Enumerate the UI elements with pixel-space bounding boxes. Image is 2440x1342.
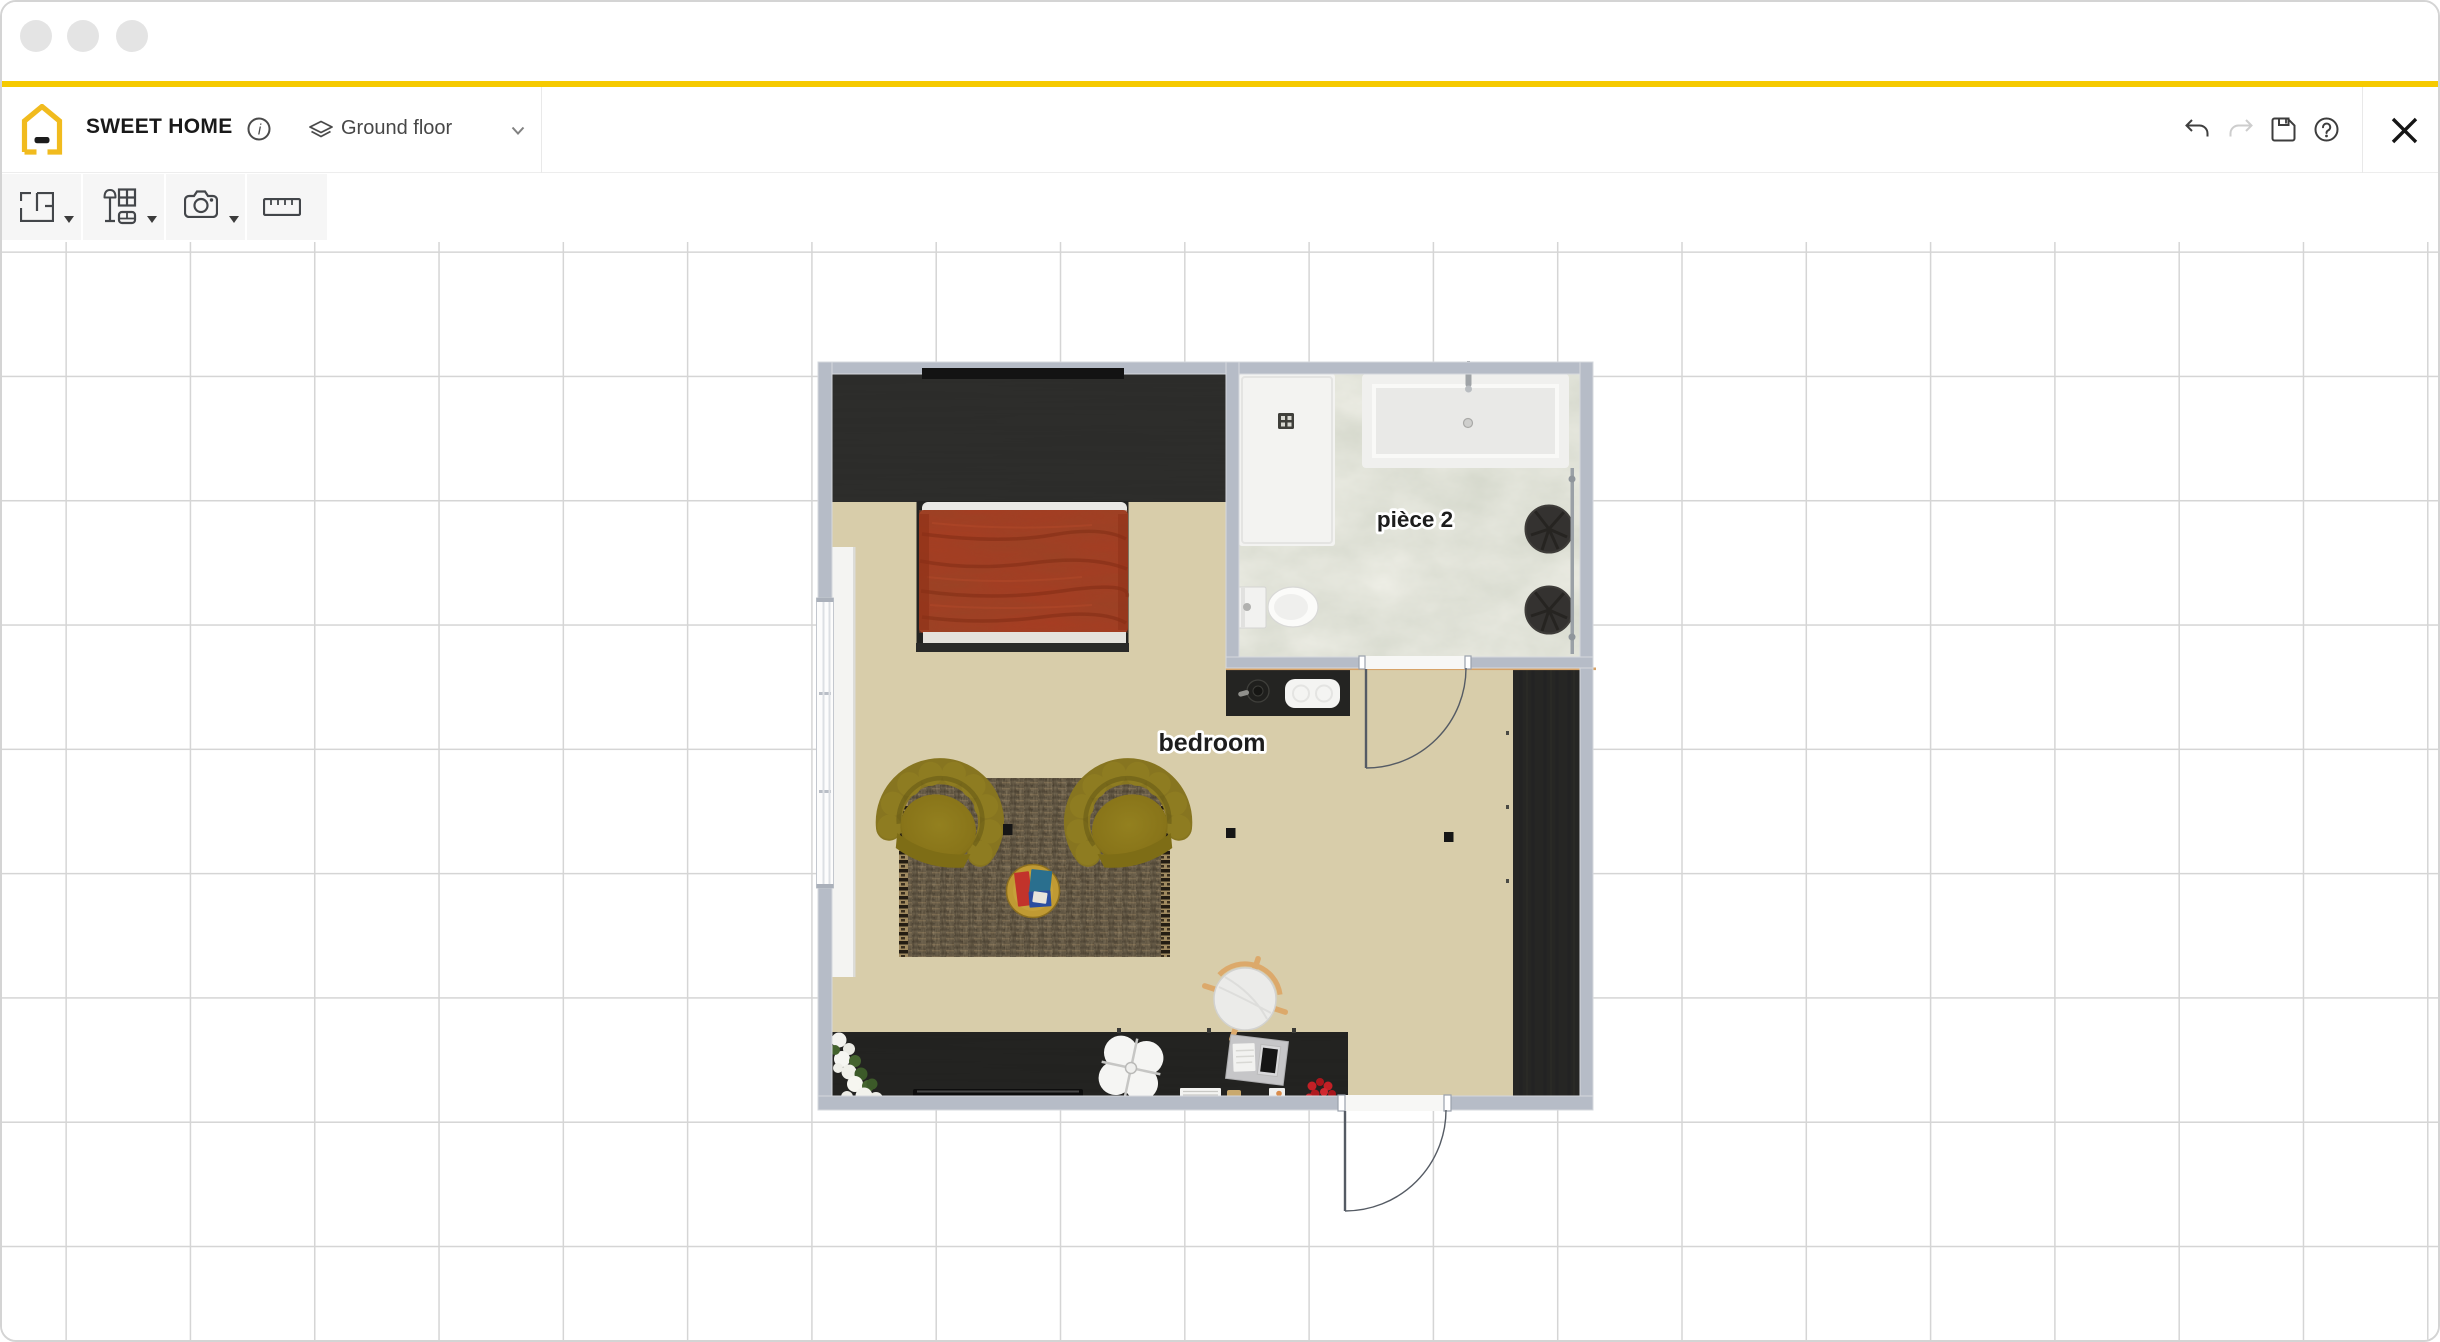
svg-text:i: i xyxy=(258,122,262,139)
svg-text:bedroom: bedroom xyxy=(1159,729,1266,757)
svg-text:pièce 2: pièce 2 xyxy=(1377,507,1453,532)
